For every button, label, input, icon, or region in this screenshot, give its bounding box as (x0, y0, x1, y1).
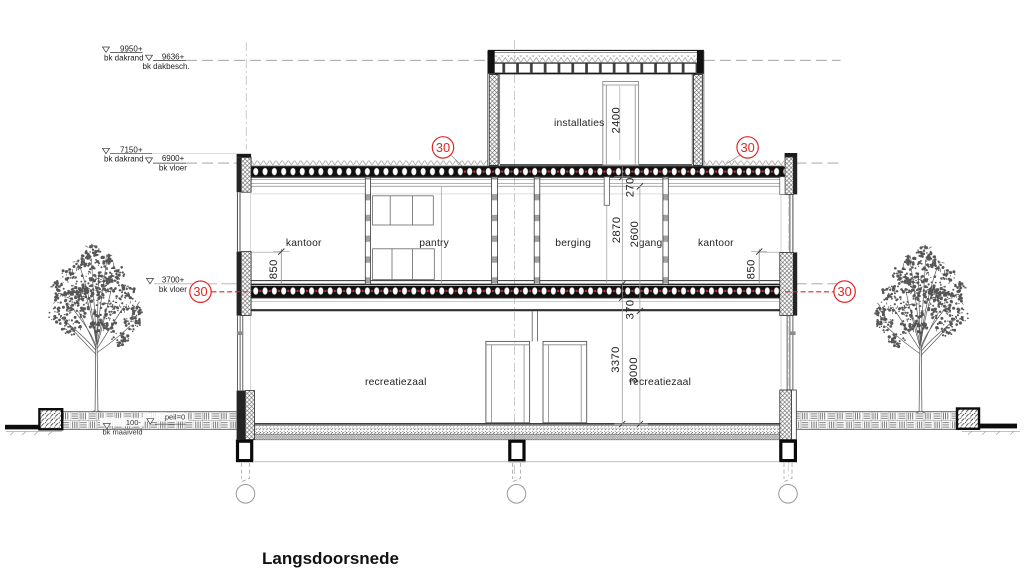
svg-text:berging: berging (555, 238, 591, 249)
svg-text:bk dakbesch.: bk dakbesch. (143, 62, 190, 71)
svg-text:2600: 2600 (629, 221, 641, 248)
svg-text:recreatiezaal: recreatiezaal (365, 377, 427, 388)
svg-text:peil=0: peil=0 (165, 412, 185, 421)
svg-text:6900+: 6900+ (162, 154, 185, 163)
svg-text:30: 30 (740, 140, 754, 155)
svg-text:bk dakrand: bk dakrand (104, 54, 144, 63)
svg-text:3370: 3370 (610, 346, 622, 373)
svg-text:bk maaiveld: bk maaiveld (103, 428, 143, 437)
svg-text:2400: 2400 (611, 107, 623, 134)
svg-text:gang: gang (639, 238, 663, 249)
svg-text:7150+: 7150+ (120, 146, 143, 155)
svg-text:3700+: 3700+ (162, 276, 185, 285)
svg-text:9636+: 9636+ (162, 52, 185, 61)
svg-text:kantoor: kantoor (286, 238, 322, 249)
svg-text:850: 850 (268, 259, 280, 279)
svg-text:bk vloer: bk vloer (159, 164, 187, 173)
svg-text:30: 30 (193, 284, 207, 299)
svg-text:bk dakrand: bk dakrand (104, 155, 144, 164)
svg-text:9950+: 9950+ (120, 44, 143, 53)
svg-text:Langsdoorsnede: Langsdoorsnede (262, 549, 399, 568)
svg-text:kantoor: kantoor (698, 238, 734, 249)
svg-text:270: 270 (625, 177, 637, 197)
svg-text:bk vloer: bk vloer (159, 285, 187, 294)
svg-text:2870: 2870 (611, 217, 623, 244)
svg-text:30: 30 (436, 140, 450, 155)
svg-text:installaties: installaties (554, 118, 604, 129)
svg-text:100-: 100- (126, 418, 142, 427)
svg-text:pantry: pantry (419, 238, 449, 249)
svg-text:850: 850 (746, 259, 758, 279)
svg-text:30: 30 (837, 284, 851, 299)
svg-text:recreatiezaal: recreatiezaal (630, 377, 692, 388)
svg-text:370: 370 (625, 300, 637, 320)
